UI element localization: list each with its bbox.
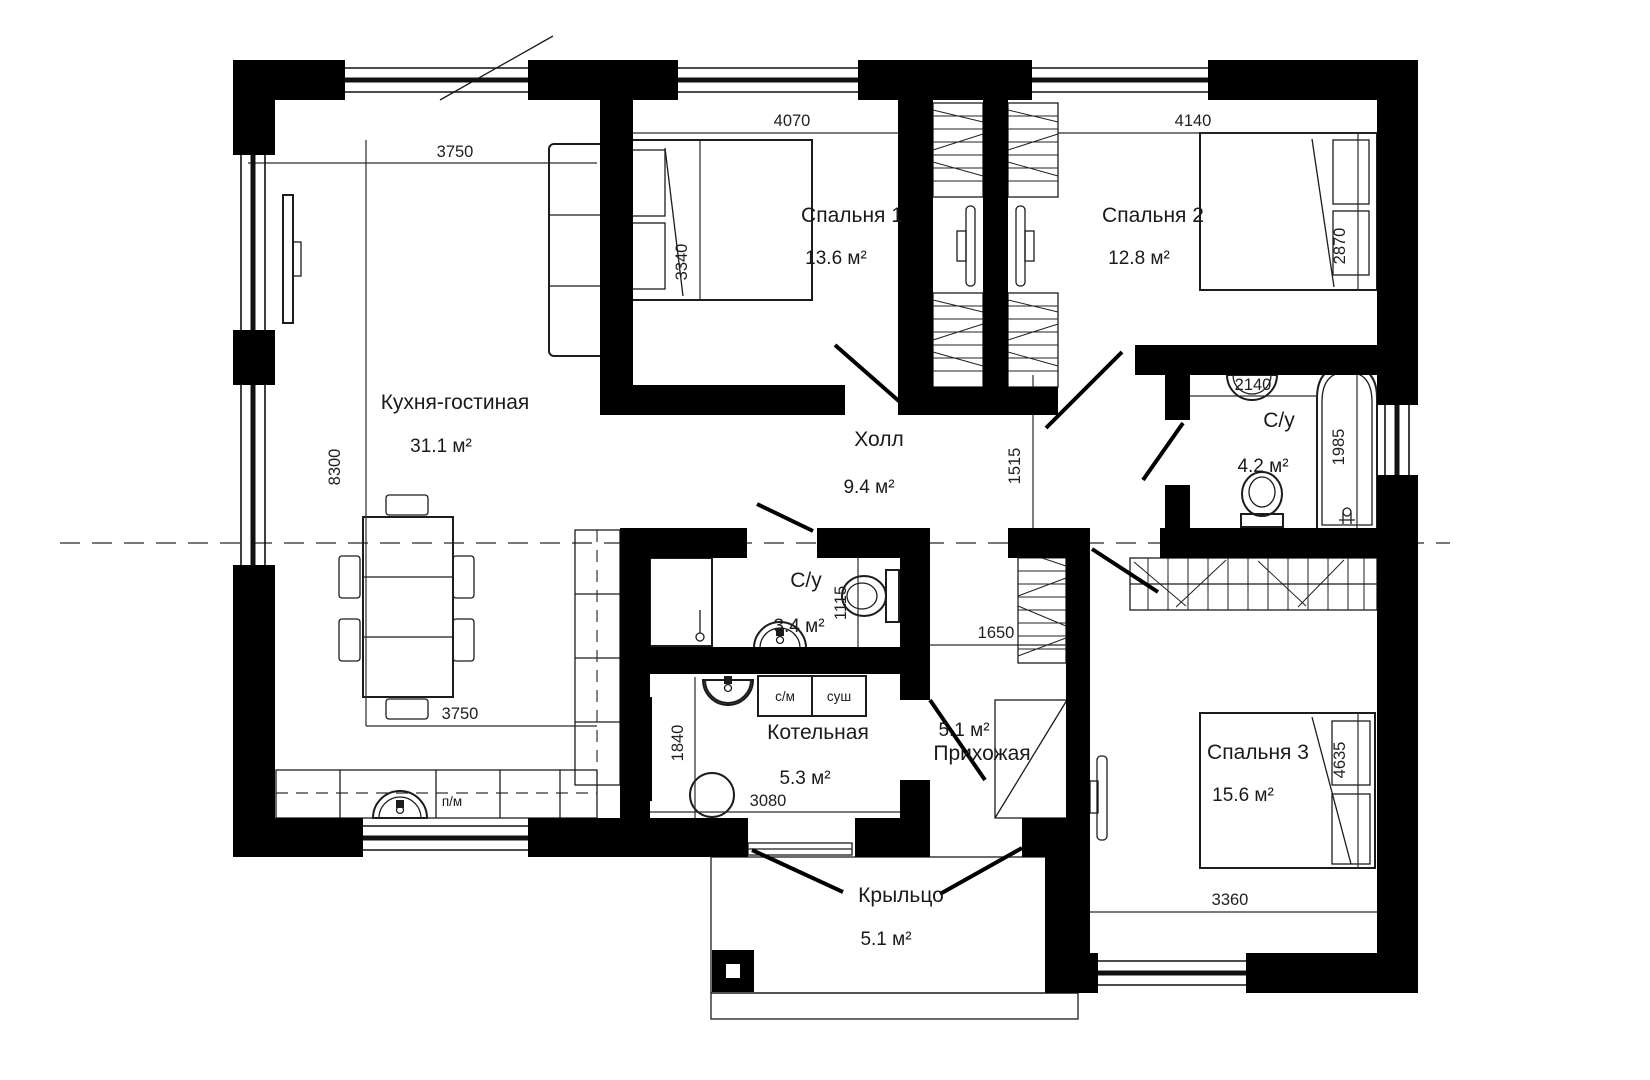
porch-column [712,950,754,992]
room-label-boiler-area: 5.3 м² [779,768,830,789]
window-bathroom-right [1385,405,1409,475]
dim-bedroom1-side: 3340 [673,244,691,281]
label-dishwasher: п/м [442,794,462,809]
room-label-bedroom3-name: Спальня 3 [1207,741,1309,764]
dim-bathroom-tub: 1985 [1330,429,1348,466]
floor-plan-page: Кухня-гостиная 31.1 м² Спальня 1 13.6 м²… [0,0,1650,1080]
room-label-porch-area: 5.1 м² [860,929,911,950]
dim-wardrobe: 1650 [978,624,1015,642]
dim-kitchen-bottom: 3750 [442,705,479,723]
room-label-bedroom1-name: Спальня 1 [801,204,903,227]
room-label-kitchen-area: 31.1 м² [410,436,472,457]
wc-cabinet [650,558,712,646]
room-label-kitchen-name: Кухня-гостиная [381,391,530,414]
room-label-bedroom3-area: 15.6 м² [1212,785,1274,806]
tv-kitchen [283,195,301,323]
dim-hall-side: 1515 [1006,448,1024,485]
window-bedroom2-top [1032,68,1208,92]
room-label-wc-name: С/у [790,569,822,592]
room-label-bedroom1-area: 13.6 м² [805,248,867,269]
boiler-tank [690,773,734,817]
label-dryer: суш [827,689,851,704]
window-kitchen-left-lower [241,385,265,565]
window-kitchen-bottom [363,826,528,850]
dim-kitchen-top: 3750 [437,143,474,161]
tv-bedroom1 [957,206,975,286]
floor-plan-drawing: Кухня-гостиная 31.1 м² Спальня 1 13.6 м²… [0,0,1650,1080]
dim-bedroom3-side: 4635 [1331,742,1349,779]
room-label-wc-area: 3.4 м² [773,616,824,637]
kitchen-counter [276,770,597,818]
label-washing-machine: с/м [775,689,795,704]
dim-bedroom1-top: 4070 [774,112,811,130]
dim-kitchen-left: 8300 [326,449,344,486]
dim-boiler-bottom: 3080 [750,792,787,810]
door-wc [757,504,813,531]
door-bathroom [1143,423,1183,480]
toilet-bathroom [1241,472,1283,527]
bed-bedroom2 [1200,133,1377,290]
toilet-wc [842,570,899,622]
window-bedroom3-bottom [1098,961,1246,985]
door-porch-french-swing [752,850,843,892]
room-label-boiler-name: Котельная [767,721,869,744]
window-kitchen-left-upper [241,155,265,330]
room-label-porch-name: Крыльцо [858,884,944,907]
tv-bedroom2 [1016,206,1034,286]
bed-bedroom1 [620,140,812,300]
dim-bathroom-top: 2140 [1235,376,1272,394]
room-label-entry-area: 5.1 м² [938,720,989,741]
tv-bedroom3 [1090,756,1107,840]
tall-cabinet-column [575,530,620,785]
room-label-bedroom2-name: Спальня 2 [1102,204,1204,227]
room-label-bathroom-area: 4.2 м² [1237,456,1288,477]
room-label-hall-area: 9.4 м² [843,477,894,498]
dim-boiler-side: 1840 [669,725,687,762]
room-label-hall-name: Холл [854,428,904,451]
wardrobe-bedroom3 [1130,558,1377,610]
window-kitchen-top [345,68,528,92]
dim-bedroom2-top: 4140 [1175,112,1212,130]
window-bedroom1-top [678,68,858,92]
dim-wc-side: 1115 [832,586,850,620]
dim-bedroom3-bottom: 3360 [1212,891,1249,909]
room-label-bathroom-name: С/у [1263,409,1295,432]
kitchen-sink [373,791,427,818]
room-label-entry-name: Прихожая [933,742,1030,765]
dim-bedroom2-side: 2870 [1331,228,1349,265]
boiler-sink [703,676,753,705]
room-label-bedroom2-area: 12.8 м² [1108,248,1170,269]
dining-table [363,517,453,697]
door-entry-front [940,848,1022,894]
